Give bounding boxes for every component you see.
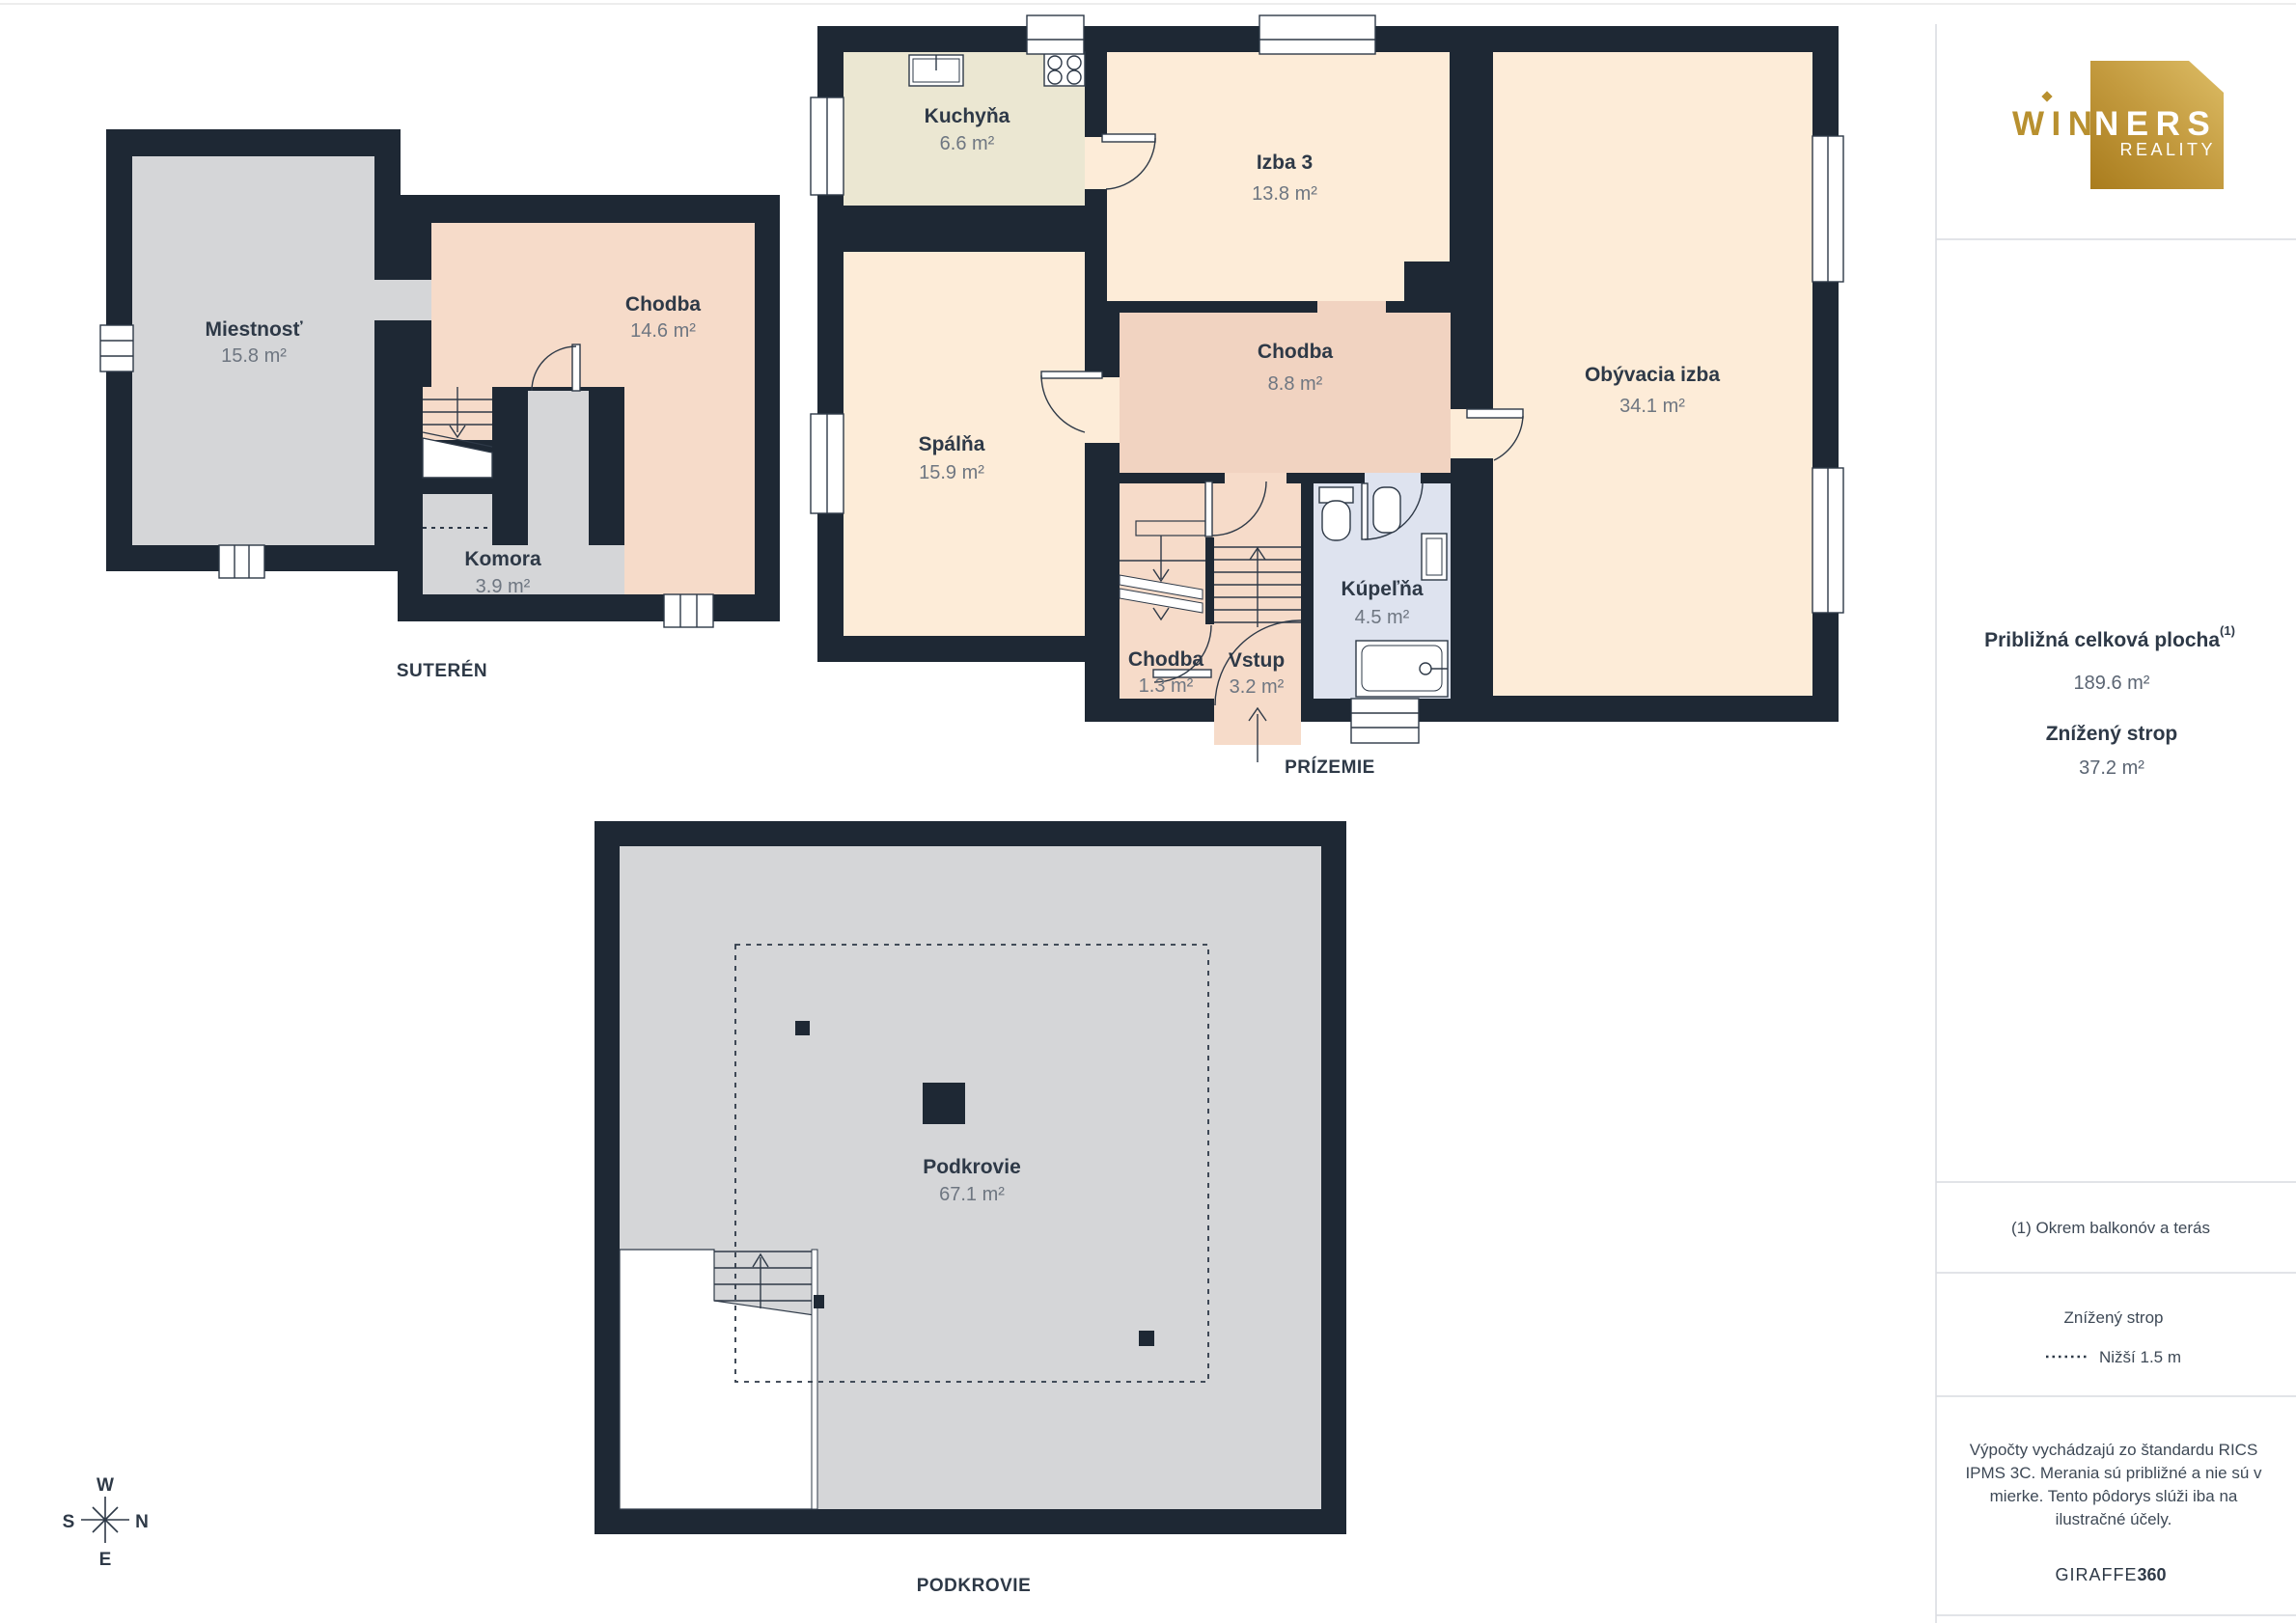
svg-text:S: S — [63, 1512, 75, 1532]
svg-text:Vstup: Vstup — [1229, 649, 1285, 672]
svg-text:(1) Okrem balkonóv a terás: (1) Okrem balkonóv a terás — [2011, 1219, 2210, 1237]
svg-text:37.2 m²: 37.2 m² — [2079, 757, 2144, 779]
svg-text:PRÍZEMIE: PRÍZEMIE — [1285, 756, 1375, 778]
svg-text:mierke. Tento pôdorys slúži ib: mierke. Tento pôdorys slúži iba na — [1990, 1487, 2238, 1505]
svg-text:Kúpeľňa: Kúpeľňa — [1341, 578, 1423, 600]
svg-text:N: N — [135, 1512, 149, 1532]
svg-text:3.9 m²: 3.9 m² — [476, 576, 531, 597]
svg-text:REALITY: REALITY — [2119, 140, 2216, 159]
svg-text:NERS: NERS — [2094, 105, 2217, 143]
svg-text:15.8 m²: 15.8 m² — [221, 345, 287, 367]
svg-text:Izba 3: Izba 3 — [1257, 151, 1313, 174]
svg-text:Kuchyňa: Kuchyňa — [925, 105, 1010, 127]
svg-text:67.1 m²: 67.1 m² — [939, 1184, 1005, 1205]
svg-text:15.9 m²: 15.9 m² — [919, 462, 984, 483]
svg-text:1.3 m²: 1.3 m² — [1139, 675, 1194, 697]
svg-text:4.5 m²: 4.5 m² — [1355, 607, 1410, 628]
svg-text:6.6 m²: 6.6 m² — [940, 133, 995, 154]
svg-text:Chodba: Chodba — [1128, 648, 1203, 671]
svg-text:Znížený strop: Znížený strop — [2046, 723, 2178, 745]
svg-text:Podkrovie: Podkrovie — [923, 1156, 1021, 1178]
svg-text:W: W — [97, 1475, 114, 1496]
svg-text:E: E — [99, 1550, 112, 1570]
svg-text:ilustračné účely.: ilustračné účely. — [2056, 1510, 2172, 1528]
svg-text:Znížený strop: Znížený strop — [2064, 1308, 2164, 1327]
svg-text:14.6 m²: 14.6 m² — [630, 320, 696, 342]
svg-text:189.6 m²: 189.6 m² — [2074, 673, 2150, 694]
svg-text:Miestnosť: Miestnosť — [205, 318, 303, 341]
svg-text:Chodba: Chodba — [1258, 341, 1333, 363]
svg-text:GIRAFFE360: GIRAFFE360 — [2055, 1565, 2166, 1584]
svg-text:Výpočty vychádzajú zo štandard: Výpočty vychádzajú zo štandardu RICS — [1970, 1441, 2258, 1459]
svg-text:13.8 m²: 13.8 m² — [1252, 183, 1317, 205]
svg-text:8.8 m²: 8.8 m² — [1268, 373, 1323, 395]
svg-text:SUTERÉN: SUTERÉN — [397, 660, 487, 681]
svg-text:Spálňa: Spálňa — [919, 433, 985, 455]
svg-text:Približná celková plocha(1): Približná celková plocha(1) — [1984, 623, 2235, 651]
svg-text:IPMS 3C. Merania sú približné: IPMS 3C. Merania sú približné a nie sú v — [1965, 1464, 2262, 1482]
svg-text:Nižší 1.5 m: Nižší 1.5 m — [2099, 1348, 2181, 1366]
svg-text:34.1 m²: 34.1 m² — [1619, 396, 1685, 417]
svg-text:PODKROVIE: PODKROVIE — [917, 1576, 1032, 1596]
svg-text:Chodba: Chodba — [625, 293, 701, 316]
svg-text:WIN: WIN — [2012, 105, 2100, 143]
svg-text:3.2 m²: 3.2 m² — [1230, 676, 1285, 698]
svg-text:Komora: Komora — [464, 548, 541, 570]
svg-text:Obývacia izba: Obývacia izba — [1585, 364, 1720, 386]
